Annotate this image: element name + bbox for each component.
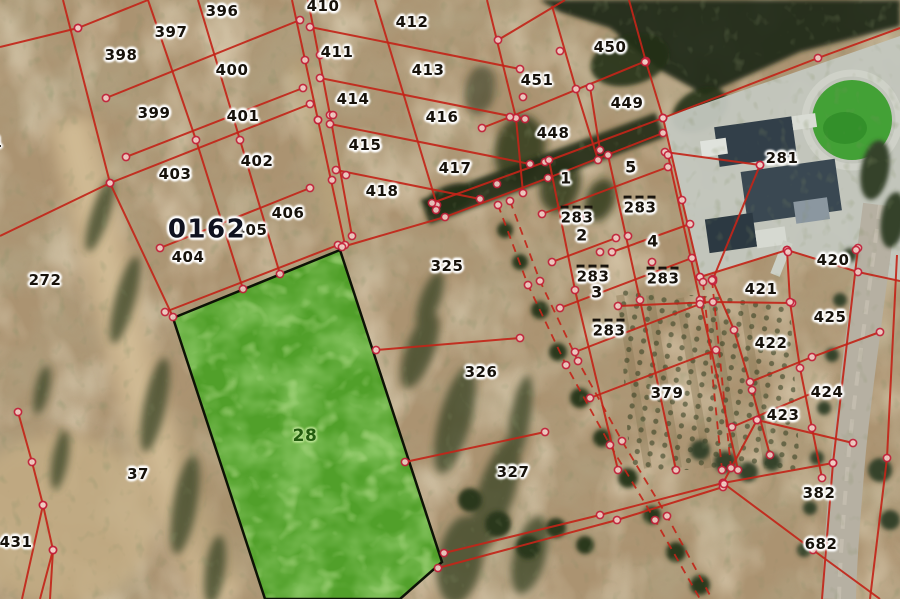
map-canvas[interactable]: 3963973984003994014024034064054042721016… bbox=[0, 0, 900, 599]
boundary-vertex-marker bbox=[594, 156, 601, 163]
boundary-vertex-marker bbox=[519, 189, 526, 196]
speckle-overlay bbox=[0, 0, 900, 599]
boundary-vertex-marker bbox=[544, 174, 551, 181]
boundary-vertex-marker bbox=[636, 296, 643, 303]
boundary-vertex-marker bbox=[814, 54, 821, 61]
boundary-vertex-marker bbox=[306, 23, 313, 30]
boundary-vertex-marker bbox=[688, 254, 695, 261]
boundary-vertex-marker bbox=[651, 516, 658, 523]
boundary-vertex-marker bbox=[614, 302, 621, 309]
boundary-vertex-marker bbox=[332, 166, 339, 173]
boundary-vertex-marker bbox=[571, 348, 578, 355]
boundary-vertex-marker bbox=[39, 501, 46, 508]
boundary-vertex-marker bbox=[316, 51, 323, 58]
boundary-vertex-marker bbox=[516, 334, 523, 341]
boundary-vertex-marker bbox=[476, 195, 483, 202]
boundary-vertex-marker bbox=[548, 258, 555, 265]
boundary-vertex-marker bbox=[612, 234, 619, 241]
boundary-vertex-marker bbox=[506, 197, 513, 204]
boundary-vertex-marker bbox=[328, 176, 335, 183]
boundary-vertex-marker bbox=[329, 111, 336, 118]
boundary-vertex-marker bbox=[316, 74, 323, 81]
boundary-vertex-marker bbox=[596, 511, 603, 518]
boundary-vertex-marker bbox=[556, 47, 563, 54]
boundary-vertex-marker bbox=[161, 308, 168, 315]
boundary-vertex-marker bbox=[524, 281, 531, 288]
boundary-vertex-marker bbox=[301, 56, 308, 63]
boundary-vertex-marker bbox=[727, 464, 734, 471]
boundary-vertex-marker bbox=[663, 512, 670, 519]
boundary-vertex-marker bbox=[586, 83, 593, 90]
boundary-vertex-marker bbox=[516, 65, 523, 72]
boundary-vertex-marker bbox=[562, 361, 569, 368]
boundary-vertex-marker bbox=[576, 214, 583, 221]
boundary-vertex-marker bbox=[809, 546, 816, 553]
boundary-vertex-marker bbox=[586, 394, 593, 401]
boundary-vertex-marker bbox=[440, 549, 447, 556]
boundary-vertex-marker bbox=[122, 153, 129, 160]
boundary-vertex-marker bbox=[756, 161, 763, 168]
boundary-vertex-marker bbox=[338, 243, 345, 250]
boundary-vertex-marker bbox=[849, 439, 856, 446]
boundary-vertex-marker bbox=[574, 357, 581, 364]
boundary-vertex-marker bbox=[613, 516, 620, 523]
boundary-vertex-marker bbox=[556, 304, 563, 311]
boundary-vertex-marker bbox=[664, 163, 671, 170]
boundary-vertex-marker bbox=[730, 326, 737, 333]
boundary-vertex-marker bbox=[401, 458, 408, 465]
boundary-vertex-marker bbox=[686, 220, 693, 227]
boundary-vertex-marker bbox=[521, 115, 528, 122]
boundary-vertex-marker bbox=[786, 298, 793, 305]
boundary-vertex-marker bbox=[648, 258, 655, 265]
boundary-vertex-marker bbox=[545, 156, 552, 163]
boundary-vertex-marker bbox=[541, 428, 548, 435]
boundary-vertex-marker bbox=[106, 179, 113, 186]
boundary-vertex-marker bbox=[441, 213, 448, 220]
boundary-vertex-marker bbox=[618, 437, 625, 444]
boundary-vertex-marker bbox=[432, 206, 439, 213]
boundary-vertex-marker bbox=[536, 277, 543, 284]
boundary-vertex-marker bbox=[493, 180, 500, 187]
boundary-vertex-marker bbox=[608, 248, 615, 255]
boundary-vertex-marker bbox=[192, 136, 199, 143]
boundary-vertex-marker bbox=[606, 441, 613, 448]
boundary-vertex-marker bbox=[672, 466, 679, 473]
boundary-vertex-marker bbox=[718, 466, 725, 473]
boundary-vertex-marker bbox=[720, 480, 727, 487]
boundary-vertex-marker bbox=[478, 124, 485, 131]
boundary-vertex-marker bbox=[796, 364, 803, 371]
boundary-vertex-marker bbox=[664, 151, 671, 158]
boundary-vertex-marker bbox=[314, 116, 321, 123]
boundary-vertex-marker bbox=[596, 146, 603, 153]
boundary-vertex-marker bbox=[434, 564, 441, 571]
boundary-vertex-marker bbox=[28, 458, 35, 465]
aerial-basemap bbox=[0, 0, 900, 599]
boundary-vertex-marker bbox=[494, 201, 501, 208]
boundary-vertex-marker bbox=[766, 451, 773, 458]
boundary-vertex-marker bbox=[883, 454, 890, 461]
boundary-vertex-marker bbox=[519, 93, 526, 100]
boundary-vertex-marker bbox=[734, 466, 741, 473]
boundary-vertex-marker bbox=[641, 58, 648, 65]
boundary-vertex-marker bbox=[808, 353, 815, 360]
boundary-vertex-marker bbox=[699, 278, 706, 285]
boundary-vertex-marker bbox=[854, 268, 861, 275]
boundary-vertex-marker bbox=[526, 160, 533, 167]
boundary-vertex-marker bbox=[276, 270, 283, 277]
boundary-vertex-marker bbox=[494, 36, 501, 43]
boundary-vertex-marker bbox=[624, 232, 631, 239]
boundary-vertex-marker bbox=[728, 423, 735, 430]
boundary-vertex-marker bbox=[808, 424, 815, 431]
boundary-vertex-marker bbox=[306, 184, 313, 191]
boundary-vertex-marker bbox=[102, 94, 109, 101]
boundary-vertex-marker bbox=[708, 276, 715, 283]
boundary-vertex-marker bbox=[342, 171, 349, 178]
boundary-vertex-marker bbox=[326, 120, 333, 127]
boundary-vertex-marker bbox=[372, 346, 379, 353]
boundary-vertex-marker bbox=[296, 16, 303, 23]
boundary-vertex-marker bbox=[784, 248, 791, 255]
boundary-vertex-marker bbox=[236, 136, 243, 143]
boundary-vertex-marker bbox=[604, 151, 611, 158]
boundary-vertex-marker bbox=[829, 459, 836, 466]
boundary-vertex-marker bbox=[876, 328, 883, 335]
boundary-vertex-marker bbox=[852, 246, 859, 253]
boundary-vertex-marker bbox=[614, 466, 621, 473]
boundary-vertex-marker bbox=[74, 24, 81, 31]
boundary-vertex-marker bbox=[748, 386, 755, 393]
boundary-vertex-marker bbox=[428, 199, 435, 206]
boundary-vertex-marker bbox=[712, 346, 719, 353]
boundary-vertex-marker bbox=[14, 408, 21, 415]
boundary-vertex-marker bbox=[156, 244, 163, 251]
boundary-vertex-marker bbox=[572, 85, 579, 92]
boundary-vertex-marker bbox=[538, 210, 545, 217]
boundary-vertex-marker bbox=[818, 474, 825, 481]
boundary-vertex-marker bbox=[746, 378, 753, 385]
boundary-vertex-marker bbox=[348, 232, 355, 239]
boundary-vertex-marker bbox=[709, 298, 716, 305]
boundary-vertex-marker bbox=[306, 100, 313, 107]
boundary-vertex-marker bbox=[299, 84, 306, 91]
boundary-vertex-marker bbox=[678, 196, 685, 203]
boundary-vertex-marker bbox=[659, 129, 666, 136]
boundary-vertex-marker bbox=[169, 313, 176, 320]
boundary-vertex-marker bbox=[596, 248, 603, 255]
boundary-vertex-marker bbox=[506, 113, 513, 120]
boundary-vertex-marker bbox=[659, 114, 666, 121]
boundary-vertex-marker bbox=[606, 326, 613, 333]
boundary-vertex-marker bbox=[696, 300, 703, 307]
boundary-vertex-marker bbox=[811, 388, 818, 395]
boundary-vertex-marker bbox=[571, 286, 578, 293]
boundary-vertex-marker bbox=[239, 285, 246, 292]
boundary-vertex-marker bbox=[753, 416, 760, 423]
boundary-vertex-marker bbox=[49, 546, 56, 553]
